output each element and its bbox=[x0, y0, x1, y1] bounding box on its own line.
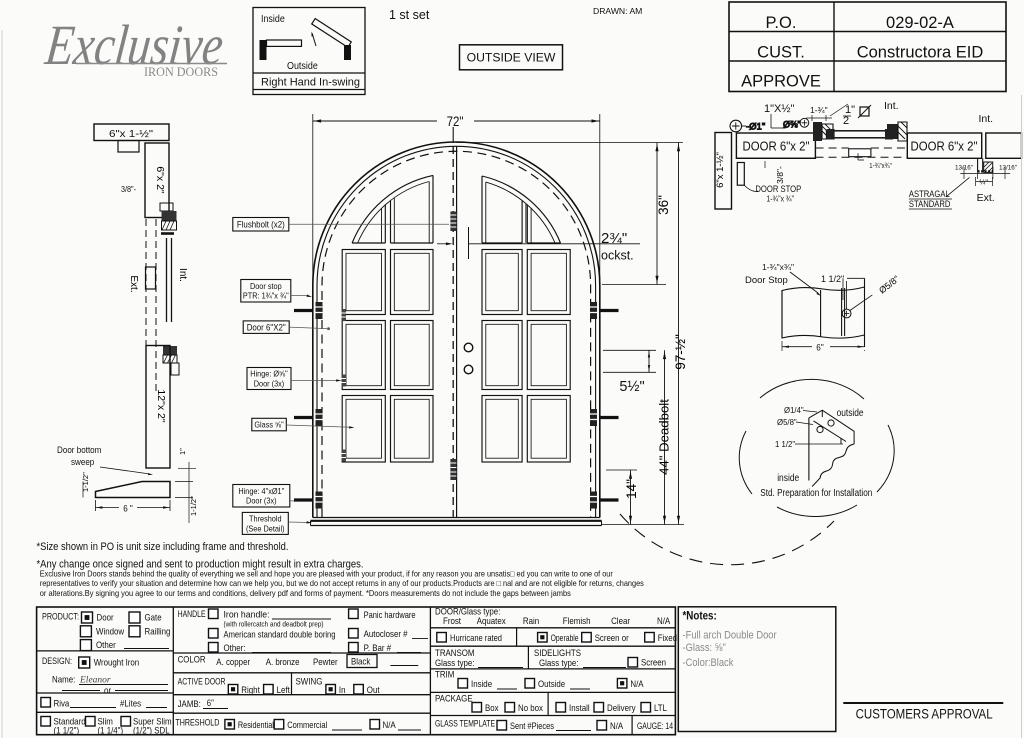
svg-text:Iron handle:: Iron handle: bbox=[224, 610, 270, 620]
svg-text:LTL: LTL bbox=[654, 703, 667, 713]
svg-text:DRAWN: AM: DRAWN: AM bbox=[593, 6, 642, 16]
svg-text:3/8"-: 3/8"- bbox=[775, 166, 785, 184]
svg-text:outside: outside bbox=[837, 408, 864, 419]
svg-text:THRESHOLD: THRESHOLD bbox=[175, 718, 219, 728]
svg-text:COLOR: COLOR bbox=[178, 655, 206, 665]
svg-text:Frost: Frost bbox=[443, 616, 461, 626]
svg-text:Residential: Residential bbox=[238, 720, 274, 730]
svg-text:ACTIVE DOOR: ACTIVE DOOR bbox=[178, 677, 226, 687]
svg-text:Screen: Screen bbox=[641, 658, 666, 668]
svg-text:Ø5/8": Ø5/8" bbox=[877, 274, 901, 296]
svg-text:Inside: Inside bbox=[471, 679, 492, 689]
svg-text:Railling: Railling bbox=[145, 626, 171, 636]
svg-text:(See Detail): (See Detail) bbox=[246, 523, 285, 533]
svg-text:OUTSIDE VIEW: OUTSIDE VIEW bbox=[467, 51, 556, 65]
svg-text:Out: Out bbox=[367, 685, 380, 695]
svg-text:Ø⅝": Ø⅝" bbox=[783, 120, 801, 130]
svg-text:PACKAGE: PACKAGE bbox=[435, 694, 473, 704]
svg-text:TRANSOM: TRANSOM bbox=[435, 648, 475, 658]
svg-text:Gate: Gate bbox=[145, 613, 162, 623]
svg-text:Operable: Operable bbox=[551, 633, 579, 643]
svg-text:(with rollercatch and deadbolt: (with rollercatch and deadbolt prep) bbox=[224, 620, 324, 629]
svg-text:or: or bbox=[104, 686, 111, 697]
svg-text:Wrought Iron: Wrought Iron bbox=[94, 658, 140, 668]
svg-text:Install: Install bbox=[569, 703, 590, 713]
svg-text:In: In bbox=[339, 685, 346, 695]
svg-text:ASTRAGAL: ASTRAGAL bbox=[909, 189, 950, 199]
svg-text:Other:: Other: bbox=[224, 643, 246, 653]
svg-text:Hinge: 4"xØ1": Hinge: 4"xØ1" bbox=[238, 486, 284, 496]
svg-text:HANDLE: HANDLE bbox=[178, 609, 206, 619]
svg-text:CUST.: CUST. bbox=[757, 44, 805, 62]
svg-text:PTR: 1¾"x ¾": PTR: 1¾"x ¾" bbox=[243, 291, 289, 301]
svg-text:36": 36" bbox=[656, 195, 671, 215]
svg-text:Eleanor: Eleanor bbox=[79, 676, 111, 686]
svg-text:Door: Door bbox=[97, 613, 114, 623]
svg-text:JAMB:: JAMB: bbox=[178, 699, 201, 709]
svg-text:(1 1/2"): (1 1/2") bbox=[54, 726, 80, 736]
svg-text:Autocloser #: Autocloser # bbox=[364, 629, 409, 639]
svg-text:American standard double borin: American standard double boring bbox=[224, 630, 336, 640]
svg-text:Door (3x): Door (3x) bbox=[254, 378, 285, 388]
svg-text:Inside: Inside bbox=[261, 13, 285, 25]
svg-text:Exclusive Iron Doors stands be: Exclusive Iron Doors stands behind the q… bbox=[40, 570, 613, 579]
svg-text:representatives to verify your: representatives to verify your situation… bbox=[40, 579, 644, 588]
svg-text:STANDARD: STANDARD bbox=[909, 199, 951, 209]
svg-text:Sent #Pieces: Sent #Pieces bbox=[510, 721, 554, 731]
svg-text:6"x 1-½": 6"x 1-½" bbox=[109, 128, 153, 140]
svg-text:Std. Preparation for Installat: Std. Preparation for Installation bbox=[760, 488, 872, 499]
svg-text:N/A: N/A bbox=[630, 679, 644, 689]
svg-text:Threshold: Threshold bbox=[249, 514, 282, 524]
svg-text:3/8"-: 3/8"- bbox=[121, 184, 136, 194]
svg-text:Door Stop: Door Stop bbox=[745, 275, 788, 286]
svg-text:TRIM: TRIM bbox=[435, 670, 454, 680]
svg-text:SIDELIGHTS: SIDELIGHTS bbox=[534, 648, 581, 658]
svg-text:GLASS TEMPLATE: GLASS TEMPLATE bbox=[435, 719, 495, 730]
svg-text:Delivery: Delivery bbox=[607, 703, 636, 713]
svg-text:Door (3x): Door (3x) bbox=[246, 496, 277, 506]
svg-text:N/A: N/A bbox=[383, 720, 397, 730]
svg-text:Int.: Int. bbox=[884, 100, 899, 112]
svg-text:6"x 2": 6"x 2" bbox=[154, 166, 166, 194]
svg-text:Black: Black bbox=[351, 657, 371, 667]
svg-text:1-1/2": 1-1/2" bbox=[81, 472, 90, 492]
svg-text:N/A: N/A bbox=[610, 721, 624, 731]
svg-text:(1/2") SDL: (1/2") SDL bbox=[133, 726, 170, 736]
svg-text:Glass type:: Glass type: bbox=[435, 658, 475, 668]
svg-text:inside: inside bbox=[777, 473, 799, 484]
svg-text:13/16": 13/16" bbox=[955, 165, 973, 172]
svg-text:Glass ⅝": Glass ⅝" bbox=[254, 420, 283, 430]
svg-text:¼": ¼" bbox=[980, 180, 989, 187]
svg-text:Door stop: Door stop bbox=[250, 281, 282, 291]
svg-text:Ext.: Ext. bbox=[128, 275, 139, 292]
svg-text:N/A: N/A bbox=[657, 616, 671, 626]
svg-text:*Size shown in PO is unit size: *Size shown in PO is unit size including… bbox=[37, 541, 289, 553]
svg-text:Constructora EID: Constructora EID bbox=[857, 44, 984, 62]
svg-text:1"X½": 1"X½" bbox=[764, 103, 795, 115]
svg-text:*Notes:: *Notes: bbox=[683, 611, 717, 623]
svg-text:No box: No box bbox=[518, 703, 543, 713]
svg-text:1-¾"x¾": 1-¾"x¾" bbox=[869, 163, 892, 170]
svg-text:12"x 2": 12"x 2" bbox=[155, 389, 167, 422]
svg-text:ockst.: ockst. bbox=[601, 249, 634, 263]
svg-text:Panic hardware: Panic hardware bbox=[364, 610, 416, 620]
svg-text:Aquatex: Aquatex bbox=[477, 616, 506, 626]
svg-text:Right Hand In-swing: Right Hand In-swing bbox=[261, 77, 360, 89]
svg-text:Pewter: Pewter bbox=[313, 657, 338, 667]
svg-text:SWING: SWING bbox=[296, 677, 323, 687]
svg-text:6": 6" bbox=[816, 343, 823, 354]
svg-text:Outside: Outside bbox=[538, 679, 565, 689]
svg-text:1 1/2": 1 1/2" bbox=[821, 274, 844, 284]
svg-text:-Glass: ⅝": -Glass: ⅝" bbox=[683, 642, 726, 654]
svg-text:or alterations.By signing you: or alterations.By signing you agree to o… bbox=[40, 589, 571, 598]
svg-text:-Color:Black: -Color:Black bbox=[683, 657, 734, 669]
svg-text:72": 72" bbox=[447, 114, 464, 129]
svg-text:Door bottom: Door bottom bbox=[57, 445, 101, 456]
svg-text:1-¾"x¾": 1-¾"x¾" bbox=[762, 262, 794, 272]
svg-text:DESIGN:: DESIGN: bbox=[42, 656, 72, 666]
svg-text:P.O.: P.O. bbox=[766, 14, 797, 32]
svg-text:13/16": 13/16" bbox=[999, 165, 1017, 172]
svg-text:Ø5/8": Ø5/8" bbox=[777, 418, 797, 427]
svg-text:Name:: Name: bbox=[52, 675, 75, 685]
svg-text:DOOR STOP: DOOR STOP bbox=[755, 184, 801, 194]
svg-text:-Ø1": -Ø1" bbox=[746, 122, 765, 133]
svg-text:-Full arch Double Door: -Full arch Double Door bbox=[683, 630, 777, 642]
svg-text:Flushbolt (x2): Flushbolt (x2) bbox=[237, 220, 285, 230]
svg-text:(1 1/4"): (1 1/4") bbox=[98, 726, 124, 736]
svg-text:5½": 5½" bbox=[619, 379, 644, 395]
svg-text:Hurricane rated: Hurricane rated bbox=[450, 633, 502, 643]
svg-text:A. copper: A. copper bbox=[216, 657, 250, 667]
svg-text:2: 2 bbox=[843, 115, 849, 127]
svg-text:Hinge: Ø⅝": Hinge: Ø⅝" bbox=[250, 369, 288, 379]
svg-text:PRODUCT:: PRODUCT: bbox=[42, 611, 79, 621]
svg-text:Window: Window bbox=[96, 626, 124, 636]
svg-text:#Lites: #Lites bbox=[120, 699, 141, 709]
svg-text:6 ": 6 " bbox=[123, 504, 133, 515]
svg-text:Box: Box bbox=[485, 703, 499, 713]
svg-text:P. Bar #: P. Bar # bbox=[364, 643, 392, 653]
svg-text:Ø1/4": Ø1/4" bbox=[784, 406, 804, 415]
svg-text:Ext.: Ext. bbox=[977, 192, 995, 204]
svg-text:1-1/2": 1-1/2" bbox=[189, 496, 198, 516]
svg-text:1-¾": 1-¾" bbox=[810, 105, 828, 115]
svg-text:Right: Right bbox=[241, 685, 260, 695]
svg-text:1-¾"x ¾": 1-¾"x ¾" bbox=[767, 195, 795, 204]
svg-text:APPROVE: APPROVE bbox=[741, 73, 821, 91]
svg-text:029-02-A: 029-02-A bbox=[886, 14, 954, 32]
svg-text:Int.: Int. bbox=[979, 113, 994, 125]
svg-text:CUSTOMERS APPROVAL: CUSTOMERS APPROVAL bbox=[856, 707, 993, 722]
svg-text:IRON DOORS: IRON DOORS bbox=[144, 65, 218, 79]
svg-text:GAUGE: 14: GAUGE: 14 bbox=[637, 721, 673, 732]
svg-text:Screen or: Screen or bbox=[595, 633, 629, 643]
svg-text:1": 1" bbox=[178, 448, 187, 455]
svg-text:Clear: Clear bbox=[611, 616, 630, 626]
svg-text:DOOR/Glass type:: DOOR/Glass type: bbox=[435, 607, 500, 617]
svg-text:97-½": 97-½" bbox=[673, 334, 688, 370]
svg-text:1 st set: 1 st set bbox=[389, 8, 430, 22]
svg-text:Glass type:: Glass type: bbox=[539, 658, 579, 668]
svg-text:Flemish: Flemish bbox=[563, 616, 591, 626]
svg-text:Riva: Riva bbox=[54, 699, 70, 709]
svg-text:DOOR 6"x 2": DOOR 6"x 2" bbox=[911, 139, 978, 154]
svg-text:Left: Left bbox=[277, 685, 291, 695]
svg-text:44" Deadbolt: 44" Deadbolt bbox=[657, 399, 672, 475]
svg-text:14": 14" bbox=[624, 479, 639, 499]
svg-text:6"x 1-½": 6"x 1-½" bbox=[715, 152, 726, 188]
svg-text:A. bronze: A. bronze bbox=[266, 657, 300, 667]
svg-text:Rain: Rain bbox=[523, 616, 539, 626]
svg-text:Int.: Int. bbox=[177, 268, 188, 282]
svg-text:1 1/2": 1 1/2" bbox=[775, 440, 795, 449]
svg-text:Commercial: Commercial bbox=[287, 720, 327, 730]
svg-text:DOOR 6"x 2": DOOR 6"x 2" bbox=[743, 139, 810, 154]
svg-text:Door 6"X2": Door 6"X2" bbox=[247, 322, 286, 332]
svg-text:2¾": 2¾" bbox=[601, 230, 627, 247]
svg-text:6": 6" bbox=[207, 698, 214, 708]
svg-text:Outside: Outside bbox=[287, 60, 318, 72]
svg-text:Other: Other bbox=[96, 640, 116, 650]
svg-text:sweep: sweep bbox=[71, 457, 94, 468]
svg-text:Fixed: Fixed bbox=[658, 633, 677, 643]
